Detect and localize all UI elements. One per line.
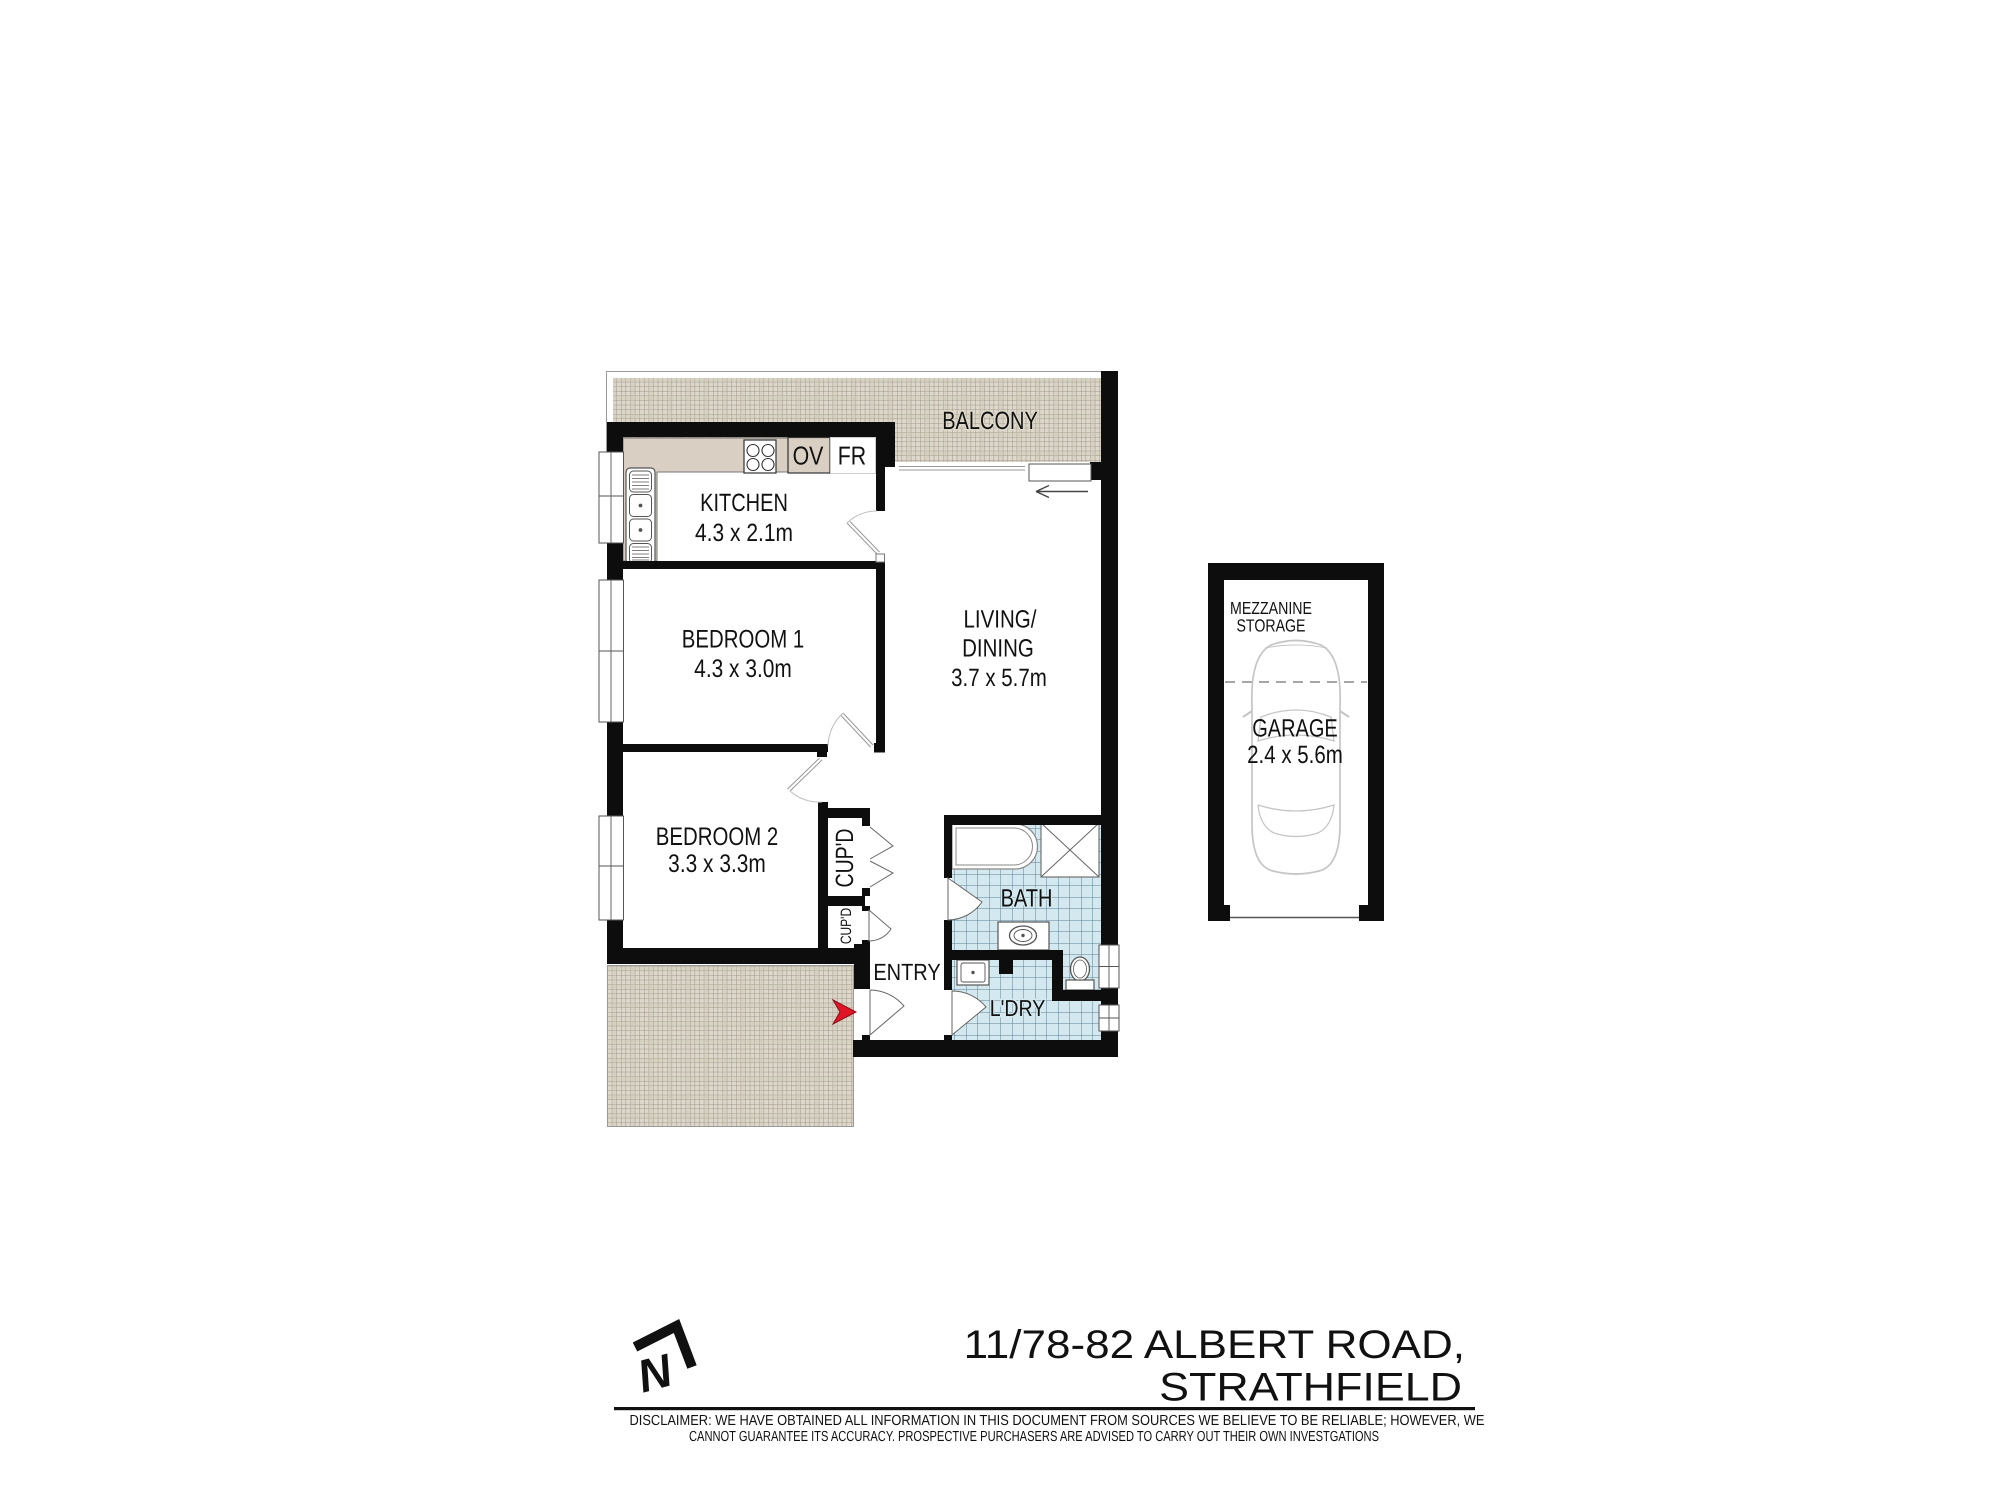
svg-text:11/78-82 ALBERT ROAD,: 11/78-82 ALBERT ROAD, [964, 1323, 1465, 1367]
svg-text:L'DRY: L'DRY [990, 995, 1046, 1021]
svg-text:CANNOT GUARANTEE ITS ACCURACY.: CANNOT GUARANTEE ITS ACCURACY. PROSPECTI… [689, 1429, 1379, 1445]
svg-text:4.3 x 2.1m: 4.3 x 2.1m [695, 519, 793, 547]
svg-text:FR: FR [838, 441, 866, 471]
svg-text:BEDROOM 1: BEDROOM 1 [682, 626, 804, 654]
svg-text:3.7 x 5.7m: 3.7 x 5.7m [951, 664, 1047, 692]
svg-text:CUP'D: CUP'D [838, 908, 855, 944]
svg-text:BALCONY: BALCONY [942, 407, 1038, 435]
svg-text:STORAGE: STORAGE [1236, 616, 1305, 636]
svg-text:LIVING/: LIVING/ [964, 606, 1037, 634]
svg-text:BEDROOM 2: BEDROOM 2 [656, 823, 778, 851]
svg-text:4.3 x 3.0m: 4.3 x 3.0m [694, 655, 792, 683]
svg-text:STRATHFIELD: STRATHFIELD [1159, 1366, 1462, 1410]
svg-text:DISCLAIMER: WE HAVE OBTAINED A: DISCLAIMER: WE HAVE OBTAINED ALL INFORMA… [630, 1413, 1485, 1429]
svg-text:DINING: DINING [962, 635, 1034, 663]
svg-text:CUP'D: CUP'D [831, 829, 859, 888]
svg-text:3.3 x 3.3m: 3.3 x 3.3m [668, 850, 766, 878]
svg-text:BATH: BATH [1001, 885, 1053, 913]
svg-text:KITCHEN: KITCHEN [700, 489, 788, 517]
svg-text:GARAGE: GARAGE [1252, 715, 1338, 743]
svg-text:2.4 x 5.6m: 2.4 x 5.6m [1247, 741, 1343, 769]
svg-text:OV: OV [793, 441, 824, 471]
svg-text:ENTRY: ENTRY [873, 959, 941, 985]
